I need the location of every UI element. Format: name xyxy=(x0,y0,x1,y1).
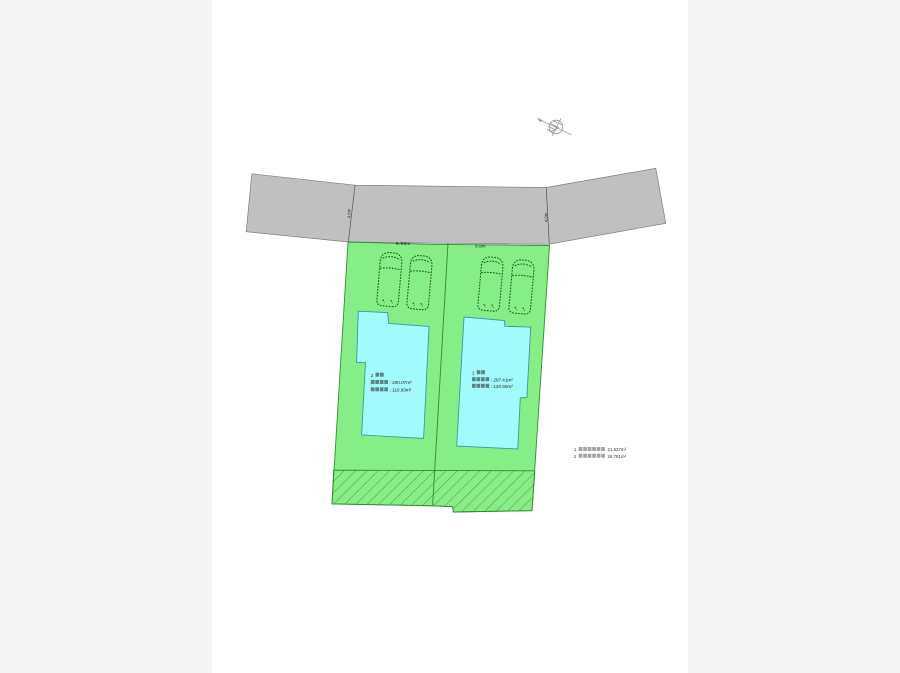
svg-text:: 200.07m²: : 200.07m² xyxy=(390,380,412,385)
svg-text:8.98m: 8.98m xyxy=(396,241,411,247)
svg-text:: 110.93m²: : 110.93m² xyxy=(390,388,412,393)
svg-text:4.0m: 4.0m xyxy=(543,212,548,222)
svg-text:8.9m: 8.9m xyxy=(475,243,486,249)
svg-text:: 207.41m²: : 207.41m² xyxy=(491,377,513,382)
svg-text:21.627m²: 21.627m² xyxy=(608,447,627,452)
svg-text:4.0m: 4.0m xyxy=(347,208,352,218)
svg-text:26.781m²: 26.781m² xyxy=(608,454,627,459)
svg-text:: 120.90m²: : 120.90m² xyxy=(491,384,513,389)
